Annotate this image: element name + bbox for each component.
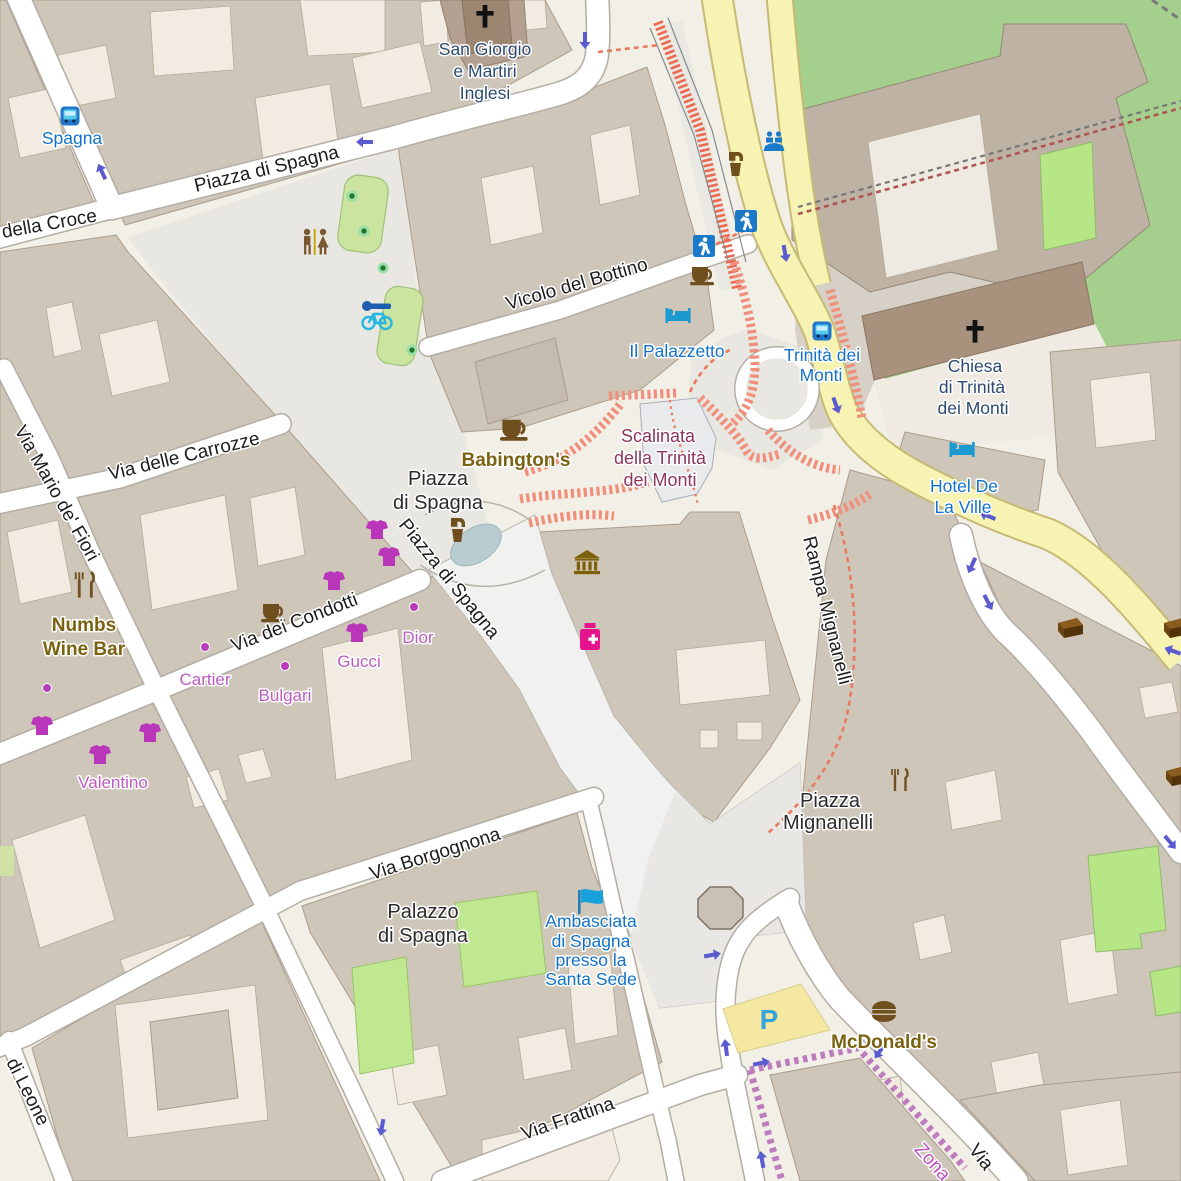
svg-text:e Martiri: e Martiri xyxy=(453,61,516,81)
svg-text:Spagna: Spagna xyxy=(42,128,103,148)
svg-text:Palazzo: Palazzo xyxy=(387,901,458,923)
svg-text:Wine Bar: Wine Bar xyxy=(43,639,126,660)
svg-text:Piazza: Piazza xyxy=(800,790,861,812)
svg-text:Il Palazzetto: Il Palazzetto xyxy=(629,341,724,361)
svg-text:La Ville: La Ville xyxy=(934,497,991,517)
svg-text:Dior: Dior xyxy=(402,628,434,647)
svg-text:P: P xyxy=(760,1004,779,1035)
svg-text:McDonald's: McDonald's xyxy=(831,1032,937,1053)
svg-text:dei Monti: dei Monti xyxy=(937,398,1008,418)
svg-text:presso la: presso la xyxy=(555,950,626,970)
svg-text:di Spagna: di Spagna xyxy=(378,925,469,947)
svg-text:Chiesa: Chiesa xyxy=(948,356,1003,376)
svg-text:dei Monti: dei Monti xyxy=(623,470,696,490)
svg-text:di Spagna: di Spagna xyxy=(552,931,631,951)
svg-text:Monti: Monti xyxy=(800,365,843,385)
svg-text:Santa Sede: Santa Sede xyxy=(545,969,636,989)
svg-text:Bulgari: Bulgari xyxy=(259,686,312,705)
svg-text:Babington's: Babington's xyxy=(461,450,570,471)
svg-text:San Giorgio: San Giorgio xyxy=(439,39,531,59)
svg-text:della Trinità: della Trinità xyxy=(614,448,707,468)
svg-text:Ambasciata: Ambasciata xyxy=(545,911,637,931)
svg-text:Numbs: Numbs xyxy=(52,615,116,636)
svg-text:di Spagna: di Spagna xyxy=(393,492,484,514)
svg-text:Trinità dei: Trinità dei xyxy=(784,345,860,365)
svg-text:Piazza: Piazza xyxy=(408,468,469,490)
svg-text:Mignanelli: Mignanelli xyxy=(783,812,873,834)
svg-text:Cartier: Cartier xyxy=(179,670,230,689)
svg-text:Scalinata: Scalinata xyxy=(621,426,696,446)
svg-text:Hotel De: Hotel De xyxy=(930,476,998,496)
svg-text:Gucci: Gucci xyxy=(337,652,380,671)
svg-text:Inglesi: Inglesi xyxy=(460,83,511,103)
svg-text:di Trinità: di Trinità xyxy=(939,377,1005,397)
svg-text:Valentino: Valentino xyxy=(78,773,148,792)
